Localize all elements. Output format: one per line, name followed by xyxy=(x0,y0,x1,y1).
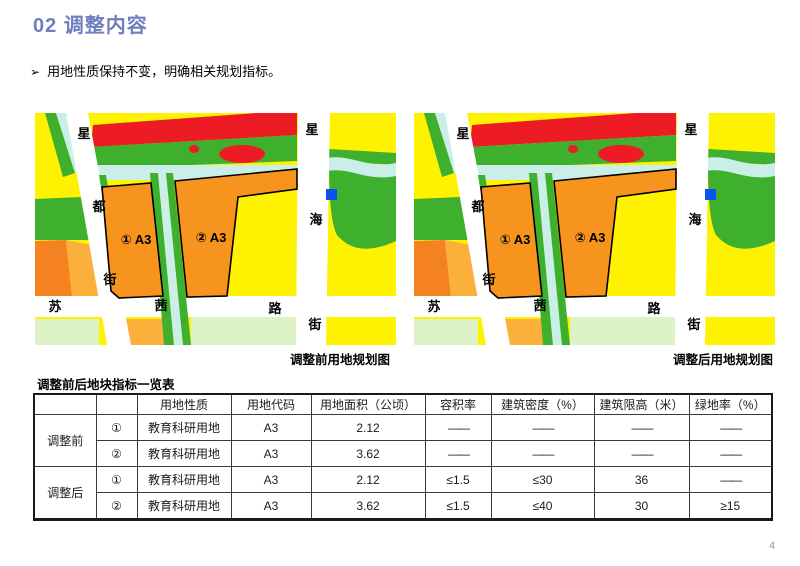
road-name-label: 街 xyxy=(686,317,700,332)
table-row: ② 教育科研用地 A3 3.62 —— —— —— —— xyxy=(34,441,772,467)
group-label-before: 调整前 xyxy=(34,415,96,467)
cell-code: A3 xyxy=(231,467,311,493)
table-row: ② 教育科研用地 A3 3.62 ≤1.5 ≤40 30 ≥15 xyxy=(34,493,772,520)
road-name-label: 路 xyxy=(647,301,661,316)
table-header-row: 用地性质 用地代码 用地面积（公顷） 容积率 建筑密度（%） 建筑限高（米） 绿… xyxy=(34,394,772,415)
bullet-text: 用地性质保持不变，明确相关规划指标。 xyxy=(47,61,281,80)
map-after-adjustment: 星都街星海街苏茜路① A3② A3 xyxy=(414,113,775,345)
green-parcel-west xyxy=(414,197,469,240)
land-use-map-before: 星都街星海街苏茜路① A3② A3 xyxy=(35,113,396,345)
caption-map-after: 调整后用地规划图 xyxy=(414,349,773,368)
greenbelt-strip xyxy=(570,317,682,345)
slide: 02 调整内容 ➢ 用地性质保持不变，明确相关规划指标。 星都街星海街苏茜路① … xyxy=(0,0,800,566)
road-name-label: 星 xyxy=(456,126,469,141)
header-code: 用地代码 xyxy=(231,394,311,415)
cell-height: —— xyxy=(594,415,689,441)
bullet-line: ➢ 用地性质保持不变，明确相关规划指标。 xyxy=(30,61,281,80)
caption-map-before: 调整前用地规划图 xyxy=(35,349,390,368)
parcel xyxy=(414,240,451,297)
cell-area: 2.12 xyxy=(311,467,425,493)
header-nature: 用地性质 xyxy=(137,394,231,415)
cell-no: ② xyxy=(96,493,137,520)
cell-area: 3.62 xyxy=(311,441,425,467)
road-name-label: 街 xyxy=(481,272,495,287)
cell-area: 2.12 xyxy=(311,415,425,441)
road-suqian-road xyxy=(414,296,775,317)
red-blob xyxy=(598,145,644,163)
table-row: 调整前 ① 教育科研用地 A3 2.12 —— —— —— —— xyxy=(34,415,772,441)
road-suqian-road xyxy=(35,296,396,317)
cell-nature: 教育科研用地 xyxy=(137,493,231,520)
cell-nature: 教育科研用地 xyxy=(137,415,231,441)
cell-code: A3 xyxy=(231,493,311,520)
parcel-label: ① A3 xyxy=(121,232,152,247)
cell-density: ≤30 xyxy=(491,467,594,493)
land-use-map-after: 星都街星海街苏茜路① A3② A3 xyxy=(414,113,775,345)
cell-code: A3 xyxy=(231,415,311,441)
cell-far: ≤1.5 xyxy=(425,493,491,520)
cell-green: ≥15 xyxy=(689,493,772,520)
group-label-after: 调整后 xyxy=(34,467,96,520)
road-name-label: 都 xyxy=(470,199,484,214)
cell-density: —— xyxy=(491,441,594,467)
road-name-label: 海 xyxy=(309,212,322,227)
header-area: 用地面积（公顷） xyxy=(311,394,425,415)
road-name-label: 苏 xyxy=(48,299,61,314)
road-name-label: 都 xyxy=(91,199,105,214)
cell-area: 3.62 xyxy=(311,493,425,520)
road-name-label: 星 xyxy=(77,126,90,141)
header-far: 容积率 xyxy=(425,394,491,415)
map-before-adjustment: 星都街星海街苏茜路① A3② A3 xyxy=(35,113,396,345)
page-number: 4 xyxy=(769,540,775,552)
road-name-label: 街 xyxy=(102,272,116,287)
cell-height: 30 xyxy=(594,493,689,520)
cell-far: ≤1.5 xyxy=(425,467,491,493)
cell-green: —— xyxy=(689,415,772,441)
road-name-label: 茜 xyxy=(533,298,546,313)
parcel-label: ② A3 xyxy=(575,230,606,245)
cell-green: —— xyxy=(689,467,772,493)
road-name-label: 海 xyxy=(688,212,701,227)
table-row: 调整后 ① 教育科研用地 A3 2.12 ≤1.5 ≤30 36 —— xyxy=(34,467,772,493)
red-blob xyxy=(219,145,265,163)
parcel xyxy=(35,240,72,297)
header-empty-group xyxy=(34,394,96,415)
header-empty-no xyxy=(96,394,137,415)
greenbelt-strip xyxy=(35,319,99,345)
road-name-label: 星 xyxy=(684,122,697,137)
red-blob xyxy=(189,145,199,153)
bullet-arrow-icon: ➢ xyxy=(30,65,40,79)
blue-facility-marker xyxy=(705,189,716,200)
parcel-label: ② A3 xyxy=(196,230,227,245)
road-name-label: 街 xyxy=(307,317,321,332)
greenbelt-strip xyxy=(191,317,303,345)
indicator-table: 用地性质 用地代码 用地面积（公顷） 容积率 建筑密度（%） 建筑限高（米） 绿… xyxy=(33,393,773,521)
header-green: 绿地率（%） xyxy=(689,394,772,415)
header-height: 建筑限高（米） xyxy=(594,394,689,415)
road-name-label: 茜 xyxy=(154,298,167,313)
road-name-label: 苏 xyxy=(427,299,440,314)
road-name-label: 星 xyxy=(305,122,318,137)
cell-far: —— xyxy=(425,441,491,467)
cell-density: ≤40 xyxy=(491,493,594,520)
cell-no: ① xyxy=(96,415,137,441)
cell-height: 36 xyxy=(594,467,689,493)
green-parcel-west xyxy=(35,197,90,240)
page-title: 02 调整内容 xyxy=(33,9,148,38)
header-density: 建筑密度（%） xyxy=(491,394,594,415)
cell-nature: 教育科研用地 xyxy=(137,467,231,493)
cell-no: ① xyxy=(96,467,137,493)
cell-density: —— xyxy=(491,415,594,441)
cell-height: —— xyxy=(594,441,689,467)
greenbelt-strip xyxy=(414,319,478,345)
red-blob xyxy=(568,145,578,153)
table-title: 调整前后地块指标一览表 xyxy=(37,374,175,393)
parcel-label: ① A3 xyxy=(500,232,531,247)
cell-green: —— xyxy=(689,441,772,467)
cell-no: ② xyxy=(96,441,137,467)
road-name-label: 路 xyxy=(268,301,282,316)
cell-code: A3 xyxy=(231,441,311,467)
blue-facility-marker xyxy=(326,189,337,200)
cell-far: —— xyxy=(425,415,491,441)
cell-nature: 教育科研用地 xyxy=(137,441,231,467)
